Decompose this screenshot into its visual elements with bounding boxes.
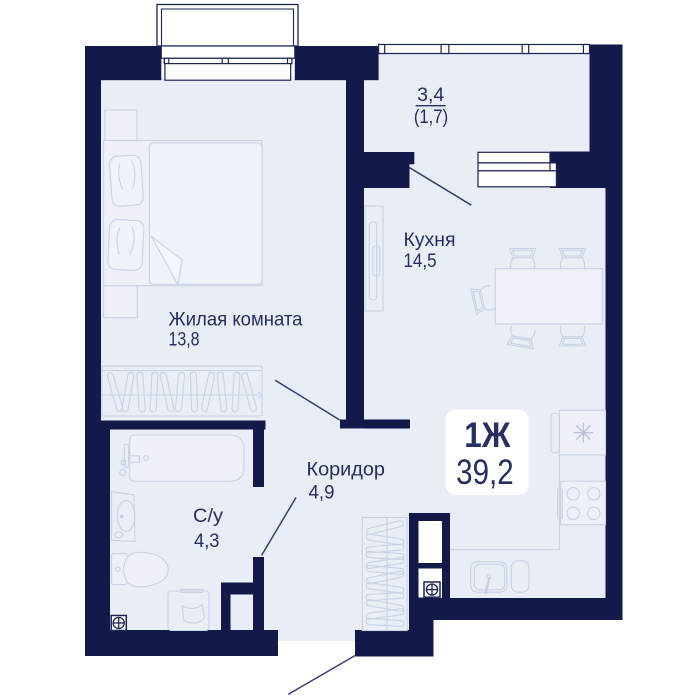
svg-text:4,3: 4,3 <box>194 531 220 552</box>
svg-text:1Ж: 1Ж <box>464 416 510 455</box>
svg-text:Жилая комната: Жилая комната <box>169 310 303 331</box>
svg-text:13,8: 13,8 <box>169 329 200 350</box>
svg-text:39,2: 39,2 <box>456 453 514 492</box>
svg-text:Кухня: Кухня <box>404 230 456 251</box>
svg-text:Коридор: Коридор <box>307 460 386 481</box>
svg-text:(1,7): (1,7) <box>414 107 448 128</box>
svg-text:С/у: С/у <box>193 506 224 527</box>
svg-text:3,4: 3,4 <box>417 85 445 106</box>
svg-text:4,9: 4,9 <box>309 483 335 504</box>
svg-text:14,5: 14,5 <box>404 251 437 272</box>
